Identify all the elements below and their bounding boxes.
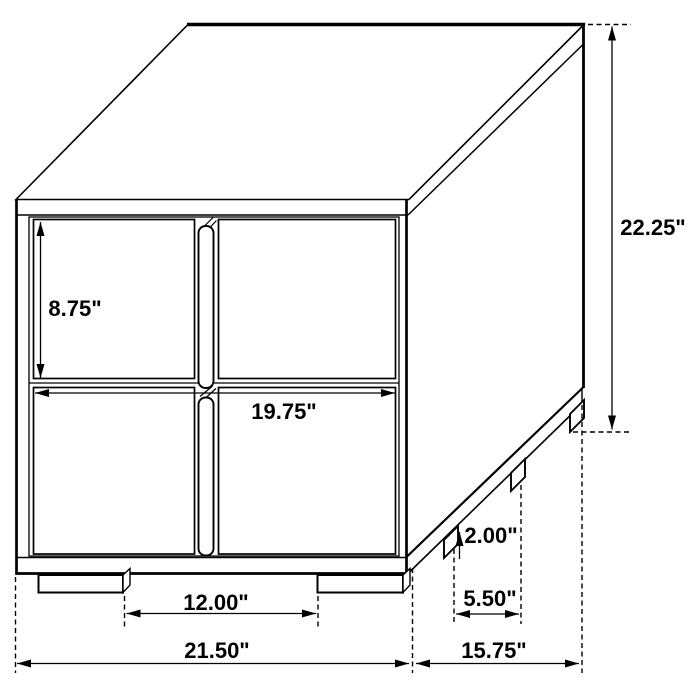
drawer-height-dimension: 8.75" <box>41 222 102 378</box>
side-foot-spacing-dimension: 5.50" <box>454 485 521 624</box>
side-foot-middle <box>511 459 525 491</box>
divider-upper-bar <box>199 226 214 388</box>
screenshot-root: 22.25" 8.75" 19.75" 2.00" 5.50" <box>0 0 700 700</box>
front-left-foot <box>39 575 124 593</box>
side-plinth-bottom-edge <box>408 404 582 574</box>
height-dimension-label: 22.25" <box>620 215 685 240</box>
height-dimension: 22.25" <box>573 25 686 433</box>
center-divider <box>199 218 217 556</box>
depth-dimension-label: 15.75" <box>461 638 526 663</box>
foot-height-dimension: 2.00" <box>460 523 518 559</box>
drawer-front-lower-left <box>34 388 195 555</box>
foot-height-dimension-label: 2.00" <box>464 523 517 548</box>
front-left-foot-side <box>123 569 130 593</box>
drawer-width-dimension: 19.75" <box>35 393 395 424</box>
front-right-foot <box>318 575 404 593</box>
front-foot-spacing-dimension: 12.00" <box>125 590 319 628</box>
width-dimension-label: 21.50" <box>184 638 249 663</box>
drawer-height-dimension-label: 8.75" <box>48 296 101 321</box>
top-face <box>16 25 584 200</box>
front-foot-spacing-dimension-label: 12.00" <box>183 590 248 615</box>
drawer-width-dimension-label: 19.75" <box>251 399 316 424</box>
drawer-front-upper-right <box>219 220 396 379</box>
front-right-foot-side <box>403 569 410 593</box>
divider-lower-bar <box>199 398 214 556</box>
nightstand-dimension-diagram: 22.25" 8.75" 19.75" 2.00" 5.50" <box>0 0 700 700</box>
side-foot-spacing-dimension-label: 5.50" <box>463 586 516 611</box>
